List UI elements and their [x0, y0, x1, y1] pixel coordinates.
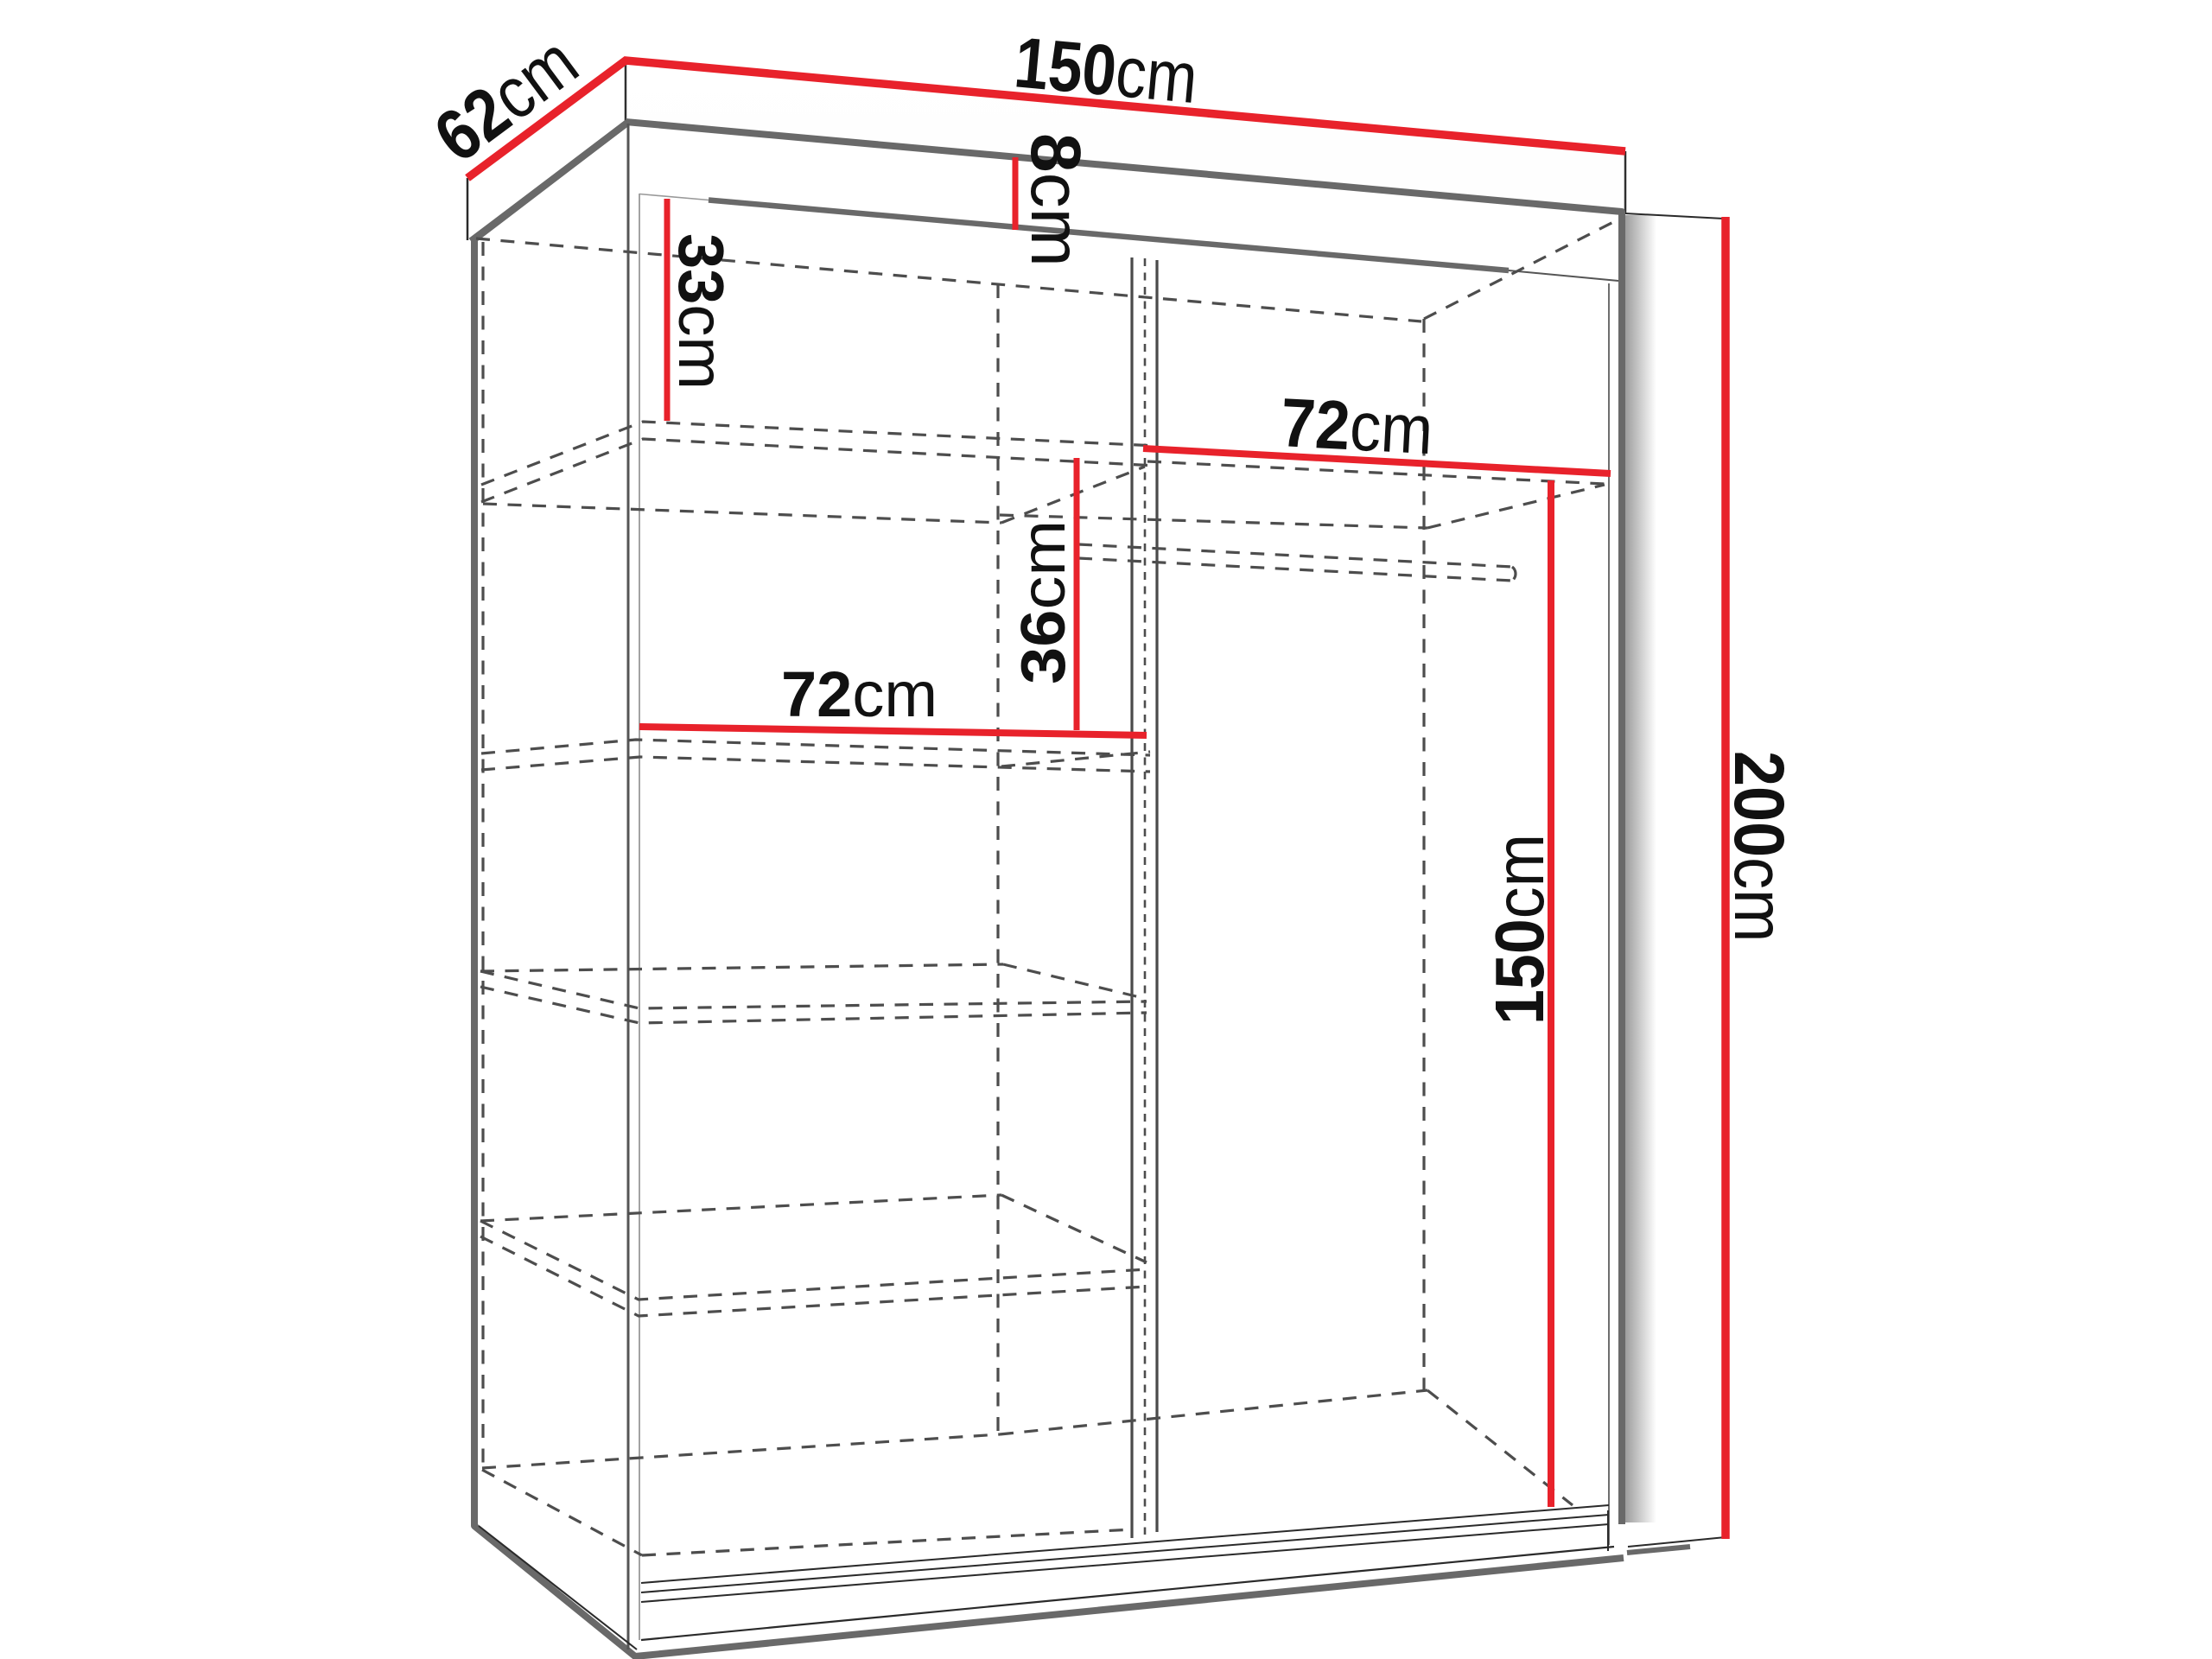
svg-text:72cm: 72cm: [1279, 385, 1434, 469]
svg-text:8cm: 8cm: [1016, 133, 1095, 267]
svg-text:72cm: 72cm: [781, 658, 938, 730]
svg-text:150cm: 150cm: [1011, 22, 1200, 118]
svg-text:33cm: 33cm: [665, 233, 737, 390]
svg-text:150cm: 150cm: [1481, 834, 1559, 1025]
svg-text:36cm: 36cm: [1008, 520, 1078, 684]
svg-text:200cm: 200cm: [1719, 751, 1800, 942]
